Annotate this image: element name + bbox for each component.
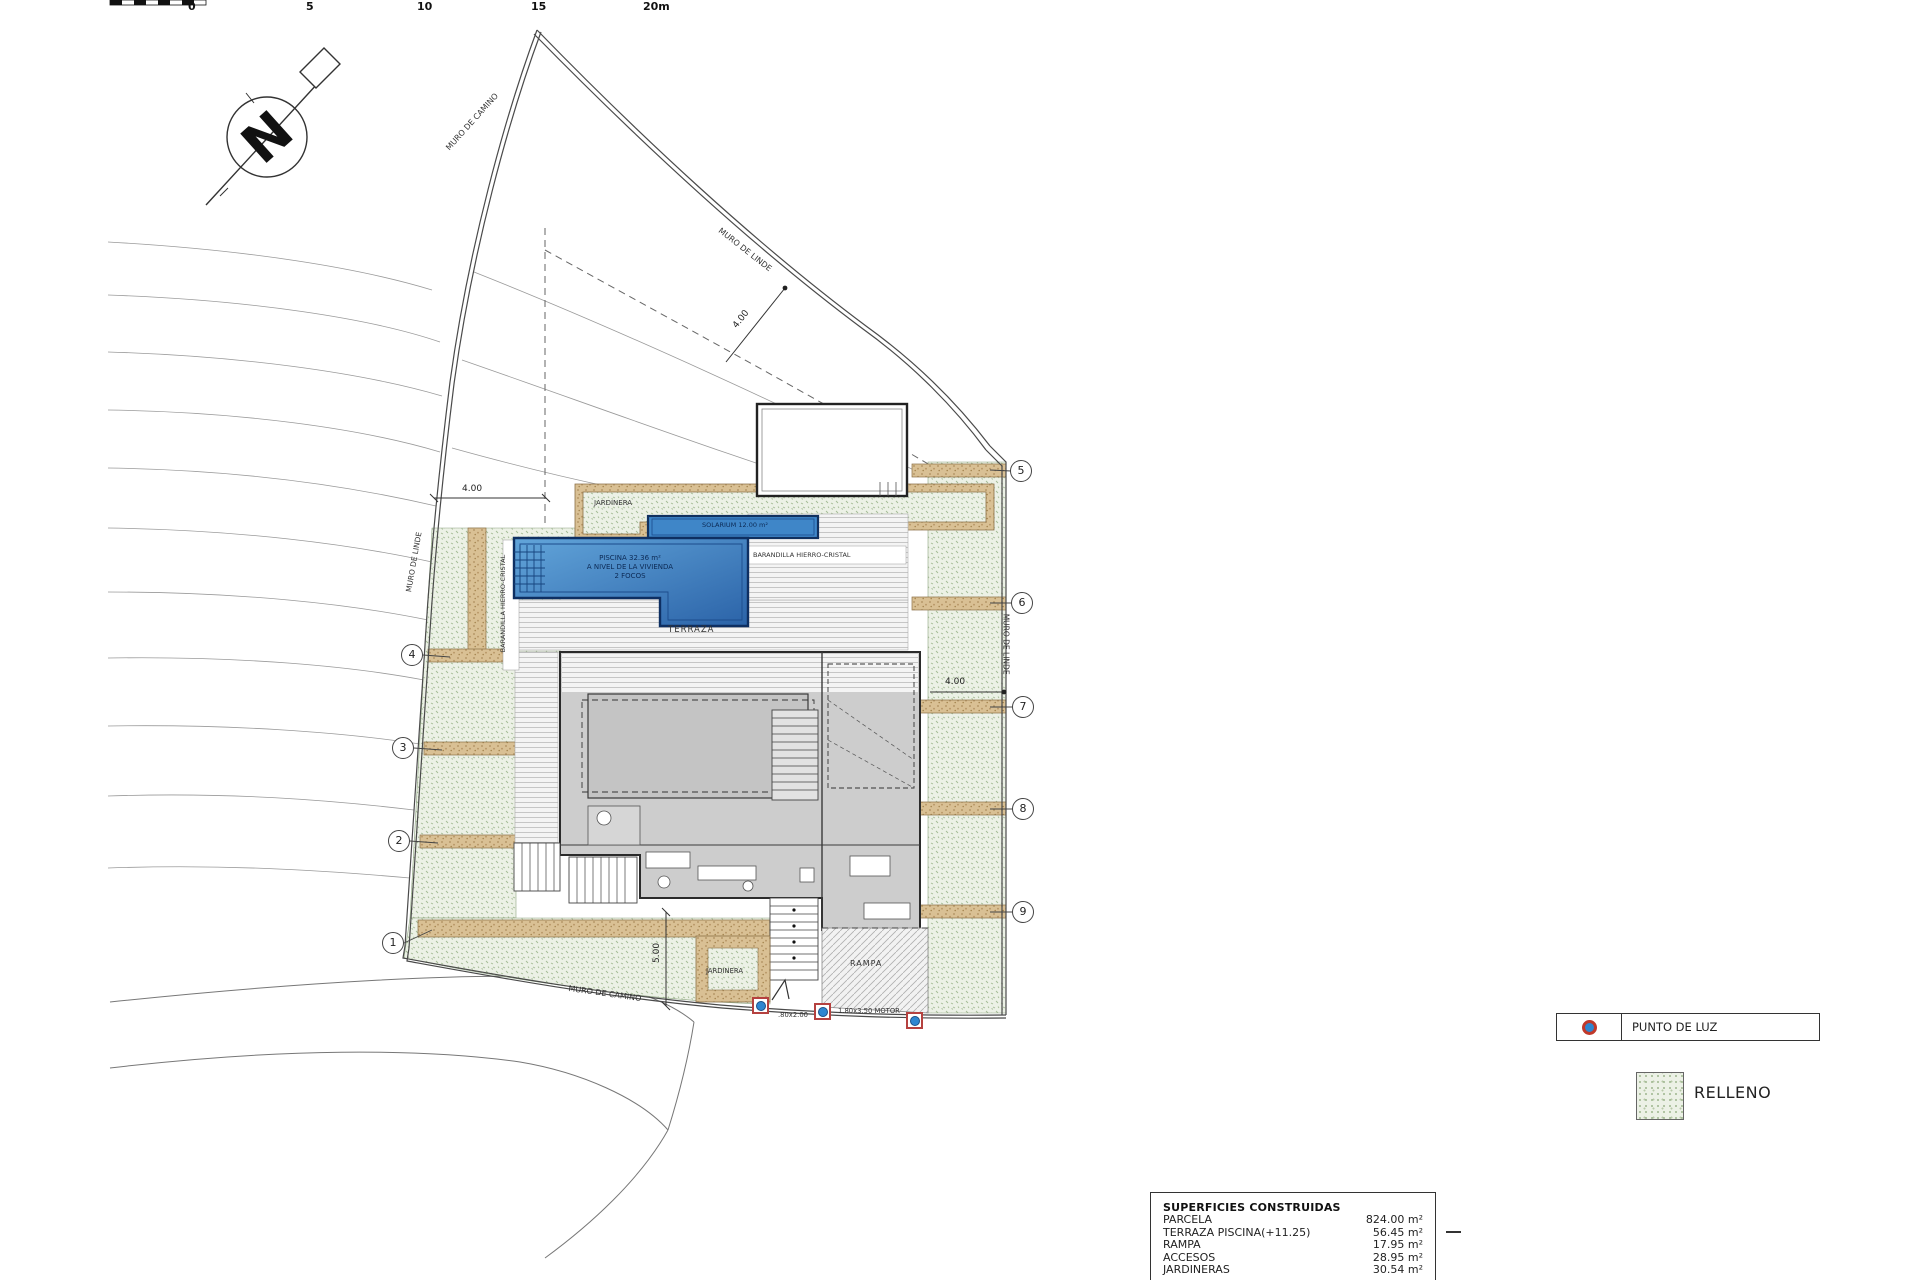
scale-tick-5: 5 <box>306 0 314 13</box>
marker-1: 1 <box>382 932 404 954</box>
marker-3: 3 <box>392 737 414 759</box>
dim-bottom-5m: 5.00 <box>653 943 663 963</box>
marker-5: 5 <box>1010 460 1032 482</box>
marker-6: 6 <box>1011 592 1033 614</box>
table-row: JARDINERAS 30.54 m² <box>1163 1264 1423 1277</box>
gate-size-note: .80x2.00 <box>778 1012 808 1019</box>
dim-right-4m: 4.00 <box>945 678 965 688</box>
road-curves <box>110 976 694 1258</box>
dim-left-4m: 4.00 <box>462 485 482 495</box>
marker-8: 8 <box>1012 798 1034 820</box>
light-point-dot <box>818 1007 828 1017</box>
row-value: 17.95 m² <box>1373 1239 1423 1252</box>
site-plan-canvas: N 0 5 10 15 20m MURO DE CAMINO MURO DE L… <box>0 0 1920 1280</box>
solarium-label: SOLARIUM 12.00 m² <box>690 522 780 529</box>
table-row: RAMPA 17.95 m² <box>1163 1239 1423 1252</box>
scale-tick-15: 15 <box>531 0 546 13</box>
terraza-label: TERRAZA <box>668 626 714 635</box>
scale-tick-0: 0 <box>188 0 196 13</box>
row-label: PARCELA <box>1163 1214 1212 1227</box>
legend-punto-de-luz: PUNTO DE LUZ <box>1556 1013 1820 1041</box>
row-label: RAMPA <box>1163 1239 1201 1252</box>
scale-tick-10: 10 <box>417 0 432 13</box>
marker-4: 4 <box>401 644 423 666</box>
punto-de-luz-symbol-cell <box>1557 1014 1622 1040</box>
rampa-label: RAMPA <box>850 960 882 969</box>
light-point-3 <box>906 1012 923 1029</box>
ramp <box>822 928 928 1013</box>
row-value: 824.00 m² <box>1366 1214 1423 1227</box>
light-point-dot <box>910 1016 920 1026</box>
barandilla-h-label: BARANDILLA HIERRO-CRISTAL <box>753 552 851 559</box>
marker-7: 7 <box>1012 696 1034 718</box>
upper-roof-block <box>757 404 907 496</box>
svg-text:N: N <box>229 99 305 176</box>
access-stair <box>770 898 818 1000</box>
marker-2: 2 <box>388 830 410 852</box>
surface-areas-table: SUPERFICIES CONSTRUIDAS PARCELA 824.00 m… <box>1150 1192 1436 1280</box>
north-compass: N <box>206 48 340 205</box>
jardinera-bottom-label: JARDINERA <box>706 968 743 975</box>
motor-gate-note: 1.80x3.50 MOTOR <box>838 1008 900 1015</box>
relleno-swatch <box>1636 1072 1684 1120</box>
light-point-2 <box>814 1003 831 1020</box>
light-point-dot <box>756 1001 766 1011</box>
relleno-label: RELLENO <box>1694 1083 1771 1102</box>
pool-label-2: A NIVEL DE LA VIVIENDA <box>570 564 690 572</box>
table-side-tick <box>1446 1231 1461 1233</box>
row-value: 30.54 m² <box>1373 1264 1423 1277</box>
muro-linde-right-label: MURO DE LINDE <box>1001 614 1009 675</box>
light-point-1 <box>752 997 769 1014</box>
pool-label-3: 2 FOCOS <box>570 573 690 581</box>
pool-label-1: PISCINA 32.36 m² <box>570 555 690 563</box>
scale-tick-20: 20m <box>643 0 670 13</box>
plan-drawing: N <box>0 0 1920 1280</box>
punto-de-luz-label: PUNTO DE LUZ <box>1622 1020 1717 1034</box>
barandilla-v-label: BARANDILLA HIERRO-CRISTAL <box>500 555 507 653</box>
punto-de-luz-icon <box>1582 1020 1597 1035</box>
marker-9: 9 <box>1012 901 1034 923</box>
table-row: PARCELA 824.00 m² <box>1163 1214 1423 1227</box>
jardinera-top-label: JARDINERA <box>594 500 632 508</box>
row-label: JARDINERAS <box>1163 1264 1230 1277</box>
